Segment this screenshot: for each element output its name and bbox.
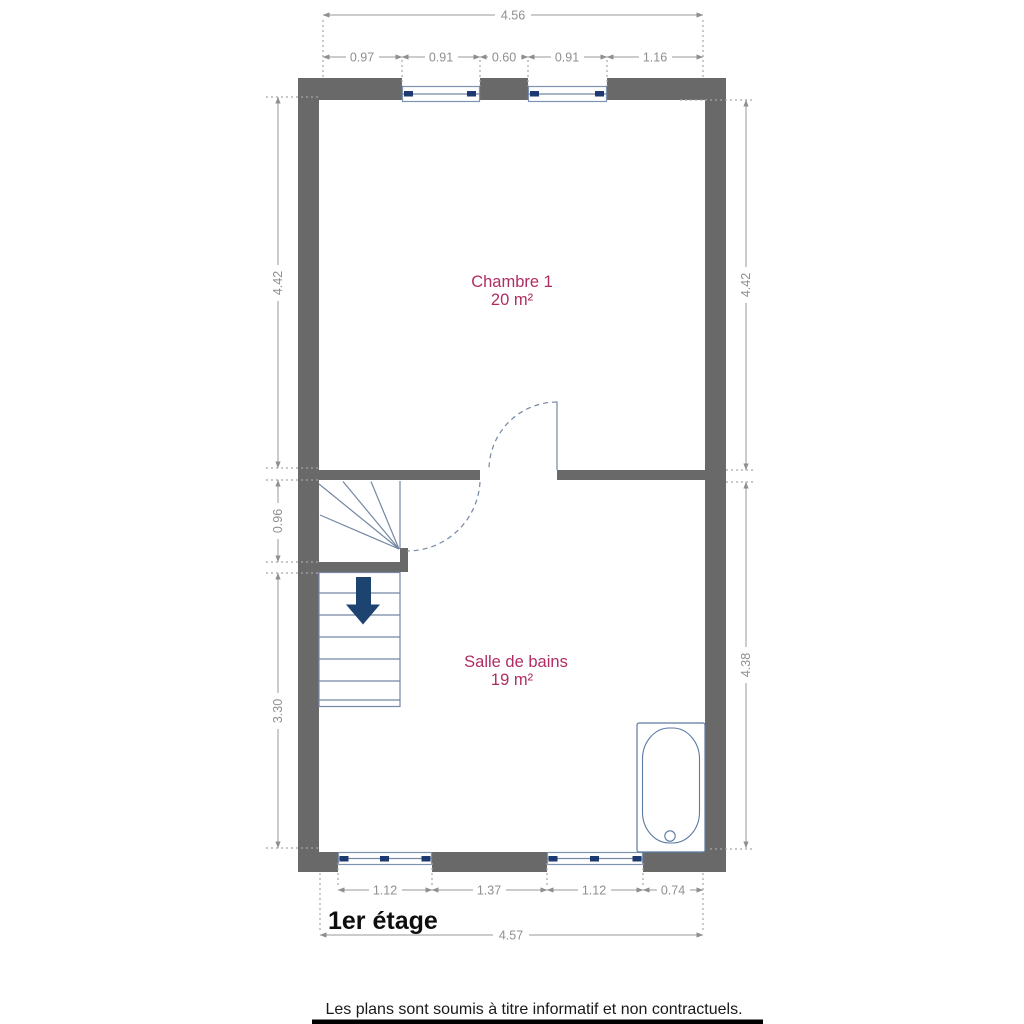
disclaimer-text: Les plans sont soumis à titre informatif… (325, 1001, 742, 1018)
dim-label-left-middle: 0.96 (271, 509, 285, 533)
room-area-chambre: 20 m² (491, 291, 534, 309)
bathtub (637, 723, 705, 852)
window-sash-mark (590, 856, 599, 862)
bathtub-drain (665, 831, 675, 841)
dim-label-top-segment: 0.60 (492, 51, 516, 65)
dim-label-top-total: 4.56 (501, 9, 525, 23)
stairs-down-arrow-icon (346, 577, 380, 625)
room-name-salle-de-bains: Salle de bains (464, 653, 568, 671)
window-sash-mark (340, 856, 349, 862)
arrow-shaft (356, 577, 371, 606)
staircase (319, 481, 480, 707)
window-sash-mark (595, 91, 604, 97)
dim-label-bottom-total: 4.57 (499, 929, 523, 943)
dim-label-bottom-segment: 1.12 (582, 884, 606, 898)
room-labels: Chambre 1 20 m² Salle de bains 19 m² (464, 273, 568, 689)
stairwell-curve (407, 482, 480, 551)
window-sash-mark (549, 856, 558, 862)
dim-label-left-top: 4.42 (271, 271, 285, 295)
wall-top (298, 78, 726, 100)
window-sash-mark (633, 856, 642, 862)
dim-label-right-top: 4.42 (739, 273, 753, 297)
dim-label-top-segment: 0.91 (555, 51, 579, 65)
dim-label-top-segment: 1.16 (643, 51, 667, 65)
floor-plan-drawing: 4.56 0.97 0.91 0.60 0.91 1.16 4.42 0.96 … (0, 0, 1024, 1024)
wall-stairs-stub (400, 548, 408, 562)
bottom-bar (312, 1020, 763, 1024)
dim-label-top-segment: 0.91 (429, 51, 453, 65)
wall-divider-right (557, 470, 705, 480)
room-name-chambre: Chambre 1 (471, 273, 553, 291)
stair-winder-tread (319, 484, 399, 549)
wall-left (298, 78, 319, 872)
dim-label-left-bottom: 3.30 (271, 699, 285, 723)
dim-label-right-bottom: 4.38 (739, 653, 753, 677)
window-sash-mark (467, 91, 476, 97)
window-top-2 (528, 78, 607, 102)
window-sash-mark (404, 91, 413, 97)
window-top-1 (402, 78, 480, 102)
floor-plan-page: 4.56 0.97 0.91 0.60 0.91 1.16 4.42 0.96 … (0, 0, 1024, 1024)
window-bottom-2 (547, 852, 643, 872)
window-sash-mark (380, 856, 389, 862)
dim-label-bottom-segment: 1.37 (477, 884, 501, 898)
window-sash-mark (530, 91, 539, 97)
room-area-salle-de-bains: 19 m² (491, 671, 534, 689)
window-bottom-1 (338, 852, 432, 872)
stair-winder-tread (343, 482, 399, 550)
wall-right (705, 78, 726, 872)
wall-stairs-bottom (319, 562, 408, 572)
wall-divider-left (319, 470, 480, 480)
door-swing-arc (489, 402, 557, 470)
door (489, 402, 557, 471)
dim-label-bottom-segment: 1.12 (373, 884, 397, 898)
floor-title: 1er étage (328, 907, 438, 935)
dim-label-bottom-segment: 0.74 (661, 884, 685, 898)
dim-label-top-segment: 0.97 (350, 51, 374, 65)
window-sash-mark (422, 856, 431, 862)
